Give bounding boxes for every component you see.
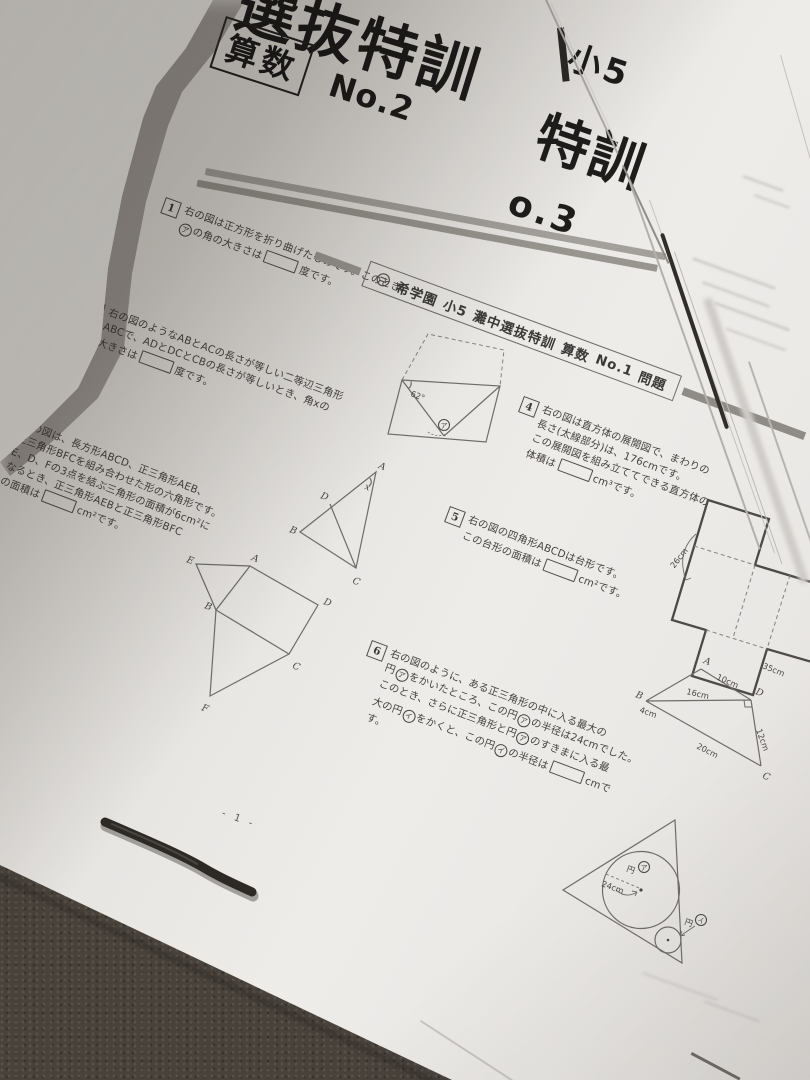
side-bc-label: 20cm (695, 741, 720, 760)
svg-text:D: D (321, 596, 333, 609)
svg-text:A: A (249, 552, 260, 565)
net-side-label: 26cm (668, 546, 690, 570)
pen (92, 802, 272, 912)
header-section: 問題 (636, 365, 670, 394)
svg-text:B: B (633, 689, 644, 702)
svg-text:A: A (701, 655, 712, 668)
photo-of-worksheets: 選抜特訓 算数 No.2 1 右の図は正方形を折り曲げたものです。このとき、 ア… (0, 0, 810, 1080)
diagram-hexagon-aebfc: E A B D C F (156, 546, 346, 726)
svg-text:B: B (202, 600, 213, 613)
svg-text:F: F (199, 702, 210, 715)
svg-text:A: A (376, 460, 387, 473)
svg-text:E: E (184, 554, 195, 567)
diagram-trapezoid-abcd: A B D C 10cm 16cm 4cm 20cm 12cm (606, 646, 810, 796)
angle-label: 62° (409, 388, 426, 402)
svg-text:イ: イ (698, 917, 705, 925)
svg-text:ア: ア (641, 864, 648, 872)
diagonal-bd-label: 16cm (686, 686, 711, 701)
svg-text:x: x (363, 481, 372, 493)
svg-text:C: C (291, 660, 302, 673)
big-circle-label: 円 (625, 863, 636, 875)
header-rule-left (314, 251, 362, 275)
small-circle-label: 円 (683, 916, 694, 928)
kibogakuen-logo-icon (374, 270, 393, 289)
svg-text:C: C (351, 575, 362, 588)
header-grade: 小5 (441, 293, 471, 320)
svg-text:D: D (318, 490, 330, 503)
svg-text:B: B (287, 524, 298, 537)
header-subject: 算数 (559, 337, 593, 366)
diagram-triangle-circles: 円 ア 24cm 円 イ (546, 776, 786, 1006)
side-ad-label: 10cm (715, 672, 740, 690)
circled-a-label: ア (441, 422, 448, 430)
svg-text:D: D (753, 686, 765, 699)
